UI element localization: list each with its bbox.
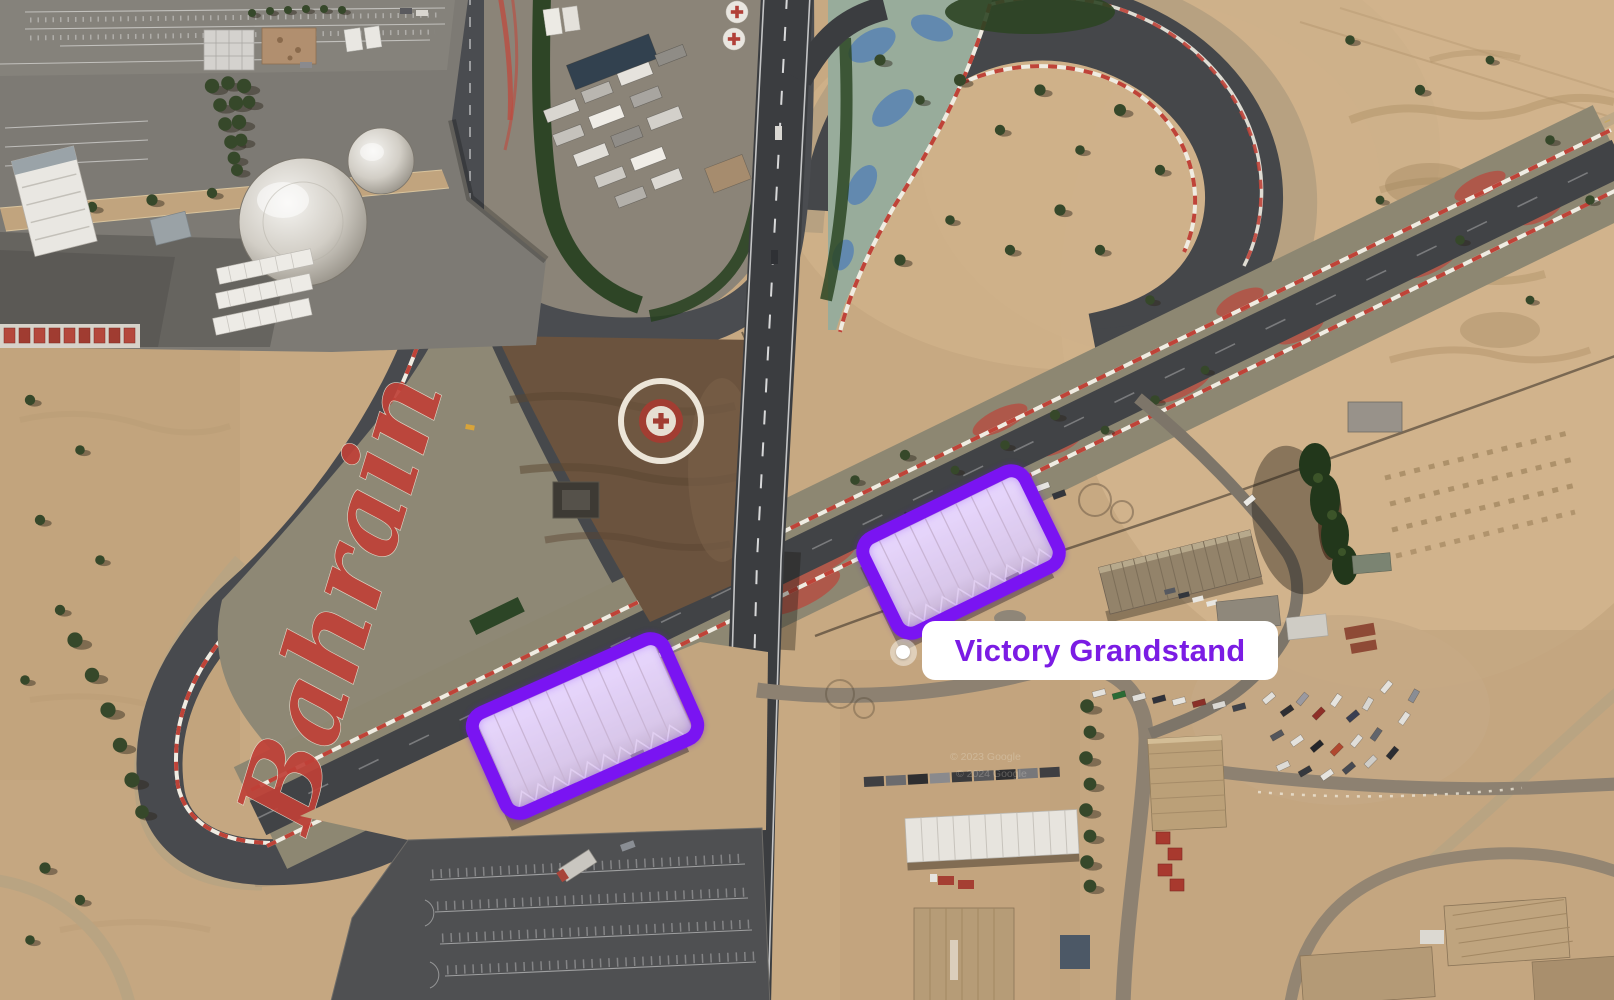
place-marker[interactable] (890, 639, 917, 666)
google-watermark-2024: © 2024 Google (956, 768, 1027, 780)
helipad (621, 381, 701, 461)
satellite-imagery: Bahrain (0, 0, 1614, 1000)
map-viewport[interactable]: Bahrain (0, 0, 1614, 1000)
google-watermark-2023: © 2023 Google (950, 751, 1021, 763)
place-marker-dot (896, 645, 910, 659)
place-label[interactable]: Victory Grandstand (922, 621, 1278, 680)
